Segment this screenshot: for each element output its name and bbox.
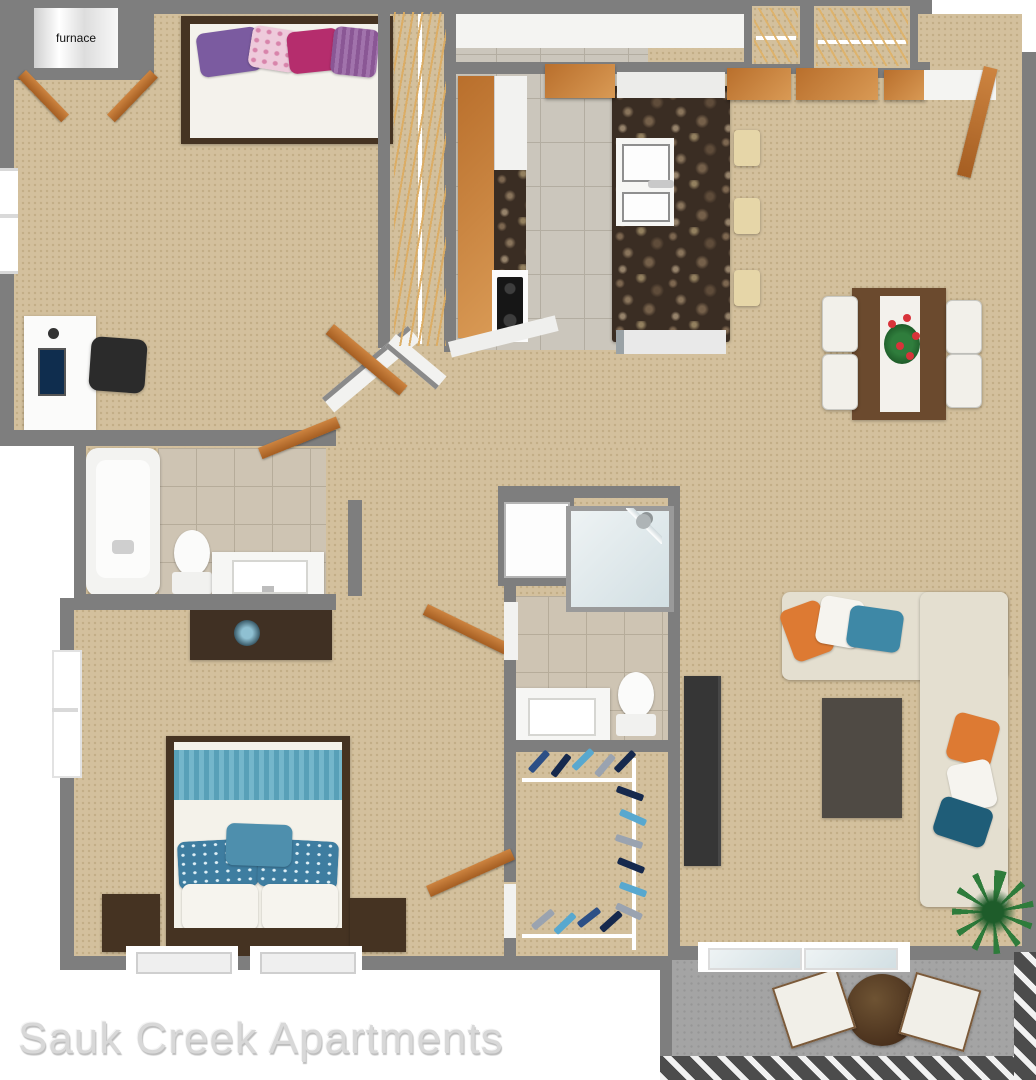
sofa-pillow-teal-1 [845, 604, 904, 653]
toilet2-bowl [618, 672, 654, 718]
vanity1-faucet [262, 586, 274, 592]
master-window-bottom-1-pane [136, 952, 232, 974]
sliding-glass-door-pane-1 [708, 948, 802, 970]
closet1-hangers [394, 12, 446, 346]
coat-closet-b-hangers [816, 8, 908, 66]
island-sink-basin2 [622, 192, 670, 222]
flower-red-2 [903, 314, 911, 322]
master-window-bottom-2-pane [260, 952, 356, 974]
sliding-glass-door-pane-2 [804, 948, 898, 970]
bedroom1-window-divider [0, 214, 18, 218]
bathtub-inner [96, 460, 150, 578]
bedroom1-window [0, 168, 18, 274]
toilet1-bowl [174, 530, 210, 576]
monitor [38, 348, 66, 396]
wall-bath1-bottom [74, 594, 336, 610]
dining-chair-3 [946, 300, 982, 354]
kitchen-wall-cabinet [545, 64, 615, 98]
wall-right [1022, 52, 1036, 955]
bed2-pillow-white-left [182, 884, 258, 930]
coat-closet-a-hangers [754, 8, 798, 62]
master-window-left-wall [52, 650, 82, 778]
dining-chair-4 [946, 354, 982, 408]
desk-lamp [48, 328, 59, 339]
bed2-teal-band [174, 750, 342, 800]
shower-head [636, 514, 651, 529]
coffee-table [822, 698, 902, 818]
master-window-left-divider [52, 708, 78, 712]
watermark-title: Sauk Creek Apartments [18, 1014, 504, 1064]
nightstand-right [350, 898, 406, 952]
closet-bifold-door-2 [796, 68, 878, 100]
office-chair [88, 336, 148, 394]
nightstand-left [102, 894, 160, 952]
wall-bedroom1-right [378, 0, 390, 348]
wall-bath1-left [74, 446, 86, 596]
island-sink-basin1 [622, 144, 670, 182]
closet-bifold-door-1 [727, 68, 791, 100]
balcony-railing-right [1014, 952, 1036, 1080]
toilet1-tank [172, 572, 212, 594]
tv-console [684, 676, 721, 866]
wall-bath1-right [348, 500, 362, 596]
bar-stool-2 [734, 198, 760, 234]
bed2-pillow-white-right [262, 884, 338, 930]
closet2-rod-right [632, 758, 636, 950]
bar-stool-1 [734, 130, 760, 166]
dishwasher [616, 330, 726, 354]
kitchen-base-cabinets [458, 76, 494, 338]
bathtub-faucet [112, 540, 134, 554]
wall-closet2-left-low [504, 938, 516, 958]
closet2-rod-bottom [522, 934, 634, 938]
flower-red-1 [888, 320, 896, 328]
wall-bath2-top [560, 486, 680, 498]
wall-bath2-closet2-divider [510, 740, 680, 752]
wall-closet2-right [668, 752, 680, 958]
toilet2-tank [616, 714, 656, 736]
closet-bifold-door-3 [884, 70, 926, 100]
kitchen-pass-threshold [617, 72, 725, 98]
balcony-railing-bottom [660, 1056, 1036, 1080]
flower-red-3 [912, 332, 920, 340]
closet2-rod-top [522, 778, 634, 782]
bar-stool-3 [734, 270, 760, 306]
potted-plant [952, 870, 1034, 954]
dining-chair-2 [822, 354, 858, 410]
furnace-unit: furnace [34, 8, 118, 68]
bath2-door-threshold [504, 602, 518, 660]
dining-chair-1 [822, 296, 858, 352]
island-sink-faucet [648, 180, 674, 188]
flower-red-5 [906, 352, 914, 360]
dresser-decor [234, 620, 260, 646]
dresser [190, 610, 332, 660]
vanity2-sink [528, 698, 596, 736]
granite-counter [494, 170, 526, 270]
refrigerator-counter [494, 76, 527, 170]
bed1-pillow-violet-striped [330, 26, 381, 79]
apartment-floor-plan: furnace [0, 0, 1036, 1080]
washer [504, 502, 570, 578]
bed2-pillow-teal-center [225, 823, 292, 867]
flower-red-4 [896, 342, 904, 350]
